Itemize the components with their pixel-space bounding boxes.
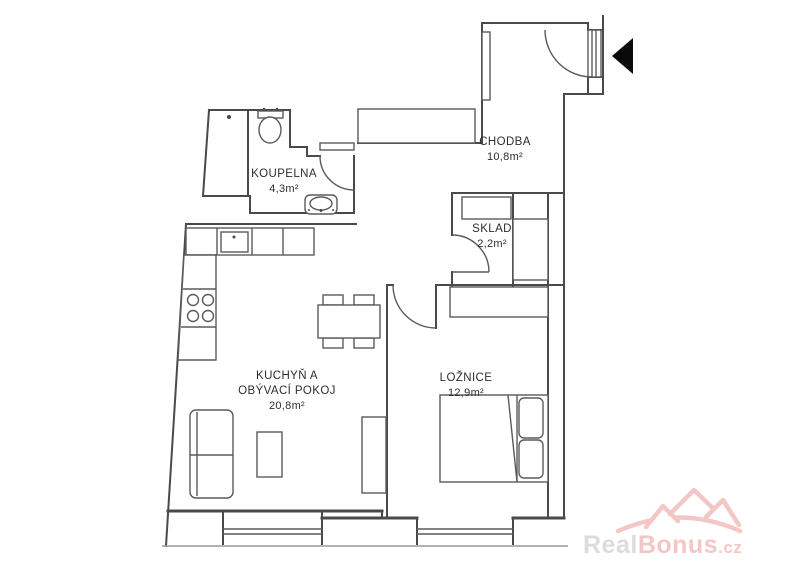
- realbonus-logo: RealBonus.cz: [583, 490, 742, 559]
- living-room-furniture: [190, 410, 386, 498]
- storage-shelf: [462, 197, 511, 219]
- pillow: [519, 398, 543, 438]
- area-koupelna: 4,3m²: [269, 183, 299, 195]
- entrance-arrow-icon: [612, 38, 633, 74]
- dining-table: [318, 295, 380, 348]
- storage-cabinet: [513, 219, 548, 280]
- hall-wardrobe: [358, 109, 475, 143]
- bedroom-wardrobe: [450, 287, 548, 317]
- svg-text:RealBonus.cz: RealBonus.cz: [583, 531, 742, 559]
- area-kuchyn: 20,8m²: [269, 400, 305, 412]
- bedroom-door: [393, 285, 436, 328]
- logo-text-real: Real: [583, 531, 638, 559]
- area-loznice: 12,9m²: [448, 387, 484, 399]
- area-sklad: 2,2m²: [477, 238, 507, 250]
- hall-radiator: [482, 32, 490, 100]
- coffee-table: [257, 432, 282, 477]
- doors: [320, 30, 633, 328]
- logo-text-tld: .cz: [718, 538, 742, 557]
- sofa: [190, 410, 233, 498]
- label-sklad: SKLAD: [472, 223, 512, 235]
- label-kuchyn-line1: KUCHYŇ A: [256, 369, 318, 382]
- entrance-door: [545, 30, 601, 77]
- label-kuchyn-line2: OBÝVACÍ POKOJ: [238, 384, 336, 397]
- bathroom-sink: [305, 195, 337, 214]
- shower-drain: [227, 115, 231, 119]
- windows: [162, 511, 568, 546]
- floorplan-drawing: KOUPELNA 4,3m² CHODBA 10,8m² SKLAD 2,2m²…: [0, 0, 800, 565]
- toilet: [258, 108, 283, 143]
- kitchen-counter: [178, 228, 314, 360]
- label-koupelna: KOUPELNA: [251, 168, 317, 180]
- kitchen-sink: [221, 232, 248, 252]
- floorplan-page: KOUPELNA 4,3m² CHODBA 10,8m² SKLAD 2,2m²…: [0, 0, 800, 565]
- tv-cabinet: [362, 417, 386, 493]
- label-loznice: LOŽNICE: [440, 371, 493, 384]
- room-labels: KOUPELNA 4,3m² CHODBA 10,8m² SKLAD 2,2m²…: [238, 136, 531, 412]
- hallway-furniture: [358, 32, 490, 143]
- label-chodba: CHODBA: [479, 136, 531, 148]
- bedroom-furniture: [440, 287, 548, 482]
- bathroom-door: [320, 143, 354, 190]
- realbonus-roofs-icon: [618, 490, 740, 531]
- area-chodba: 10,8m²: [487, 151, 523, 163]
- logo-text-bonus: Bonus: [638, 531, 718, 559]
- bed: [440, 395, 548, 482]
- kitchen-furniture: [178, 228, 380, 360]
- pillow: [519, 440, 543, 478]
